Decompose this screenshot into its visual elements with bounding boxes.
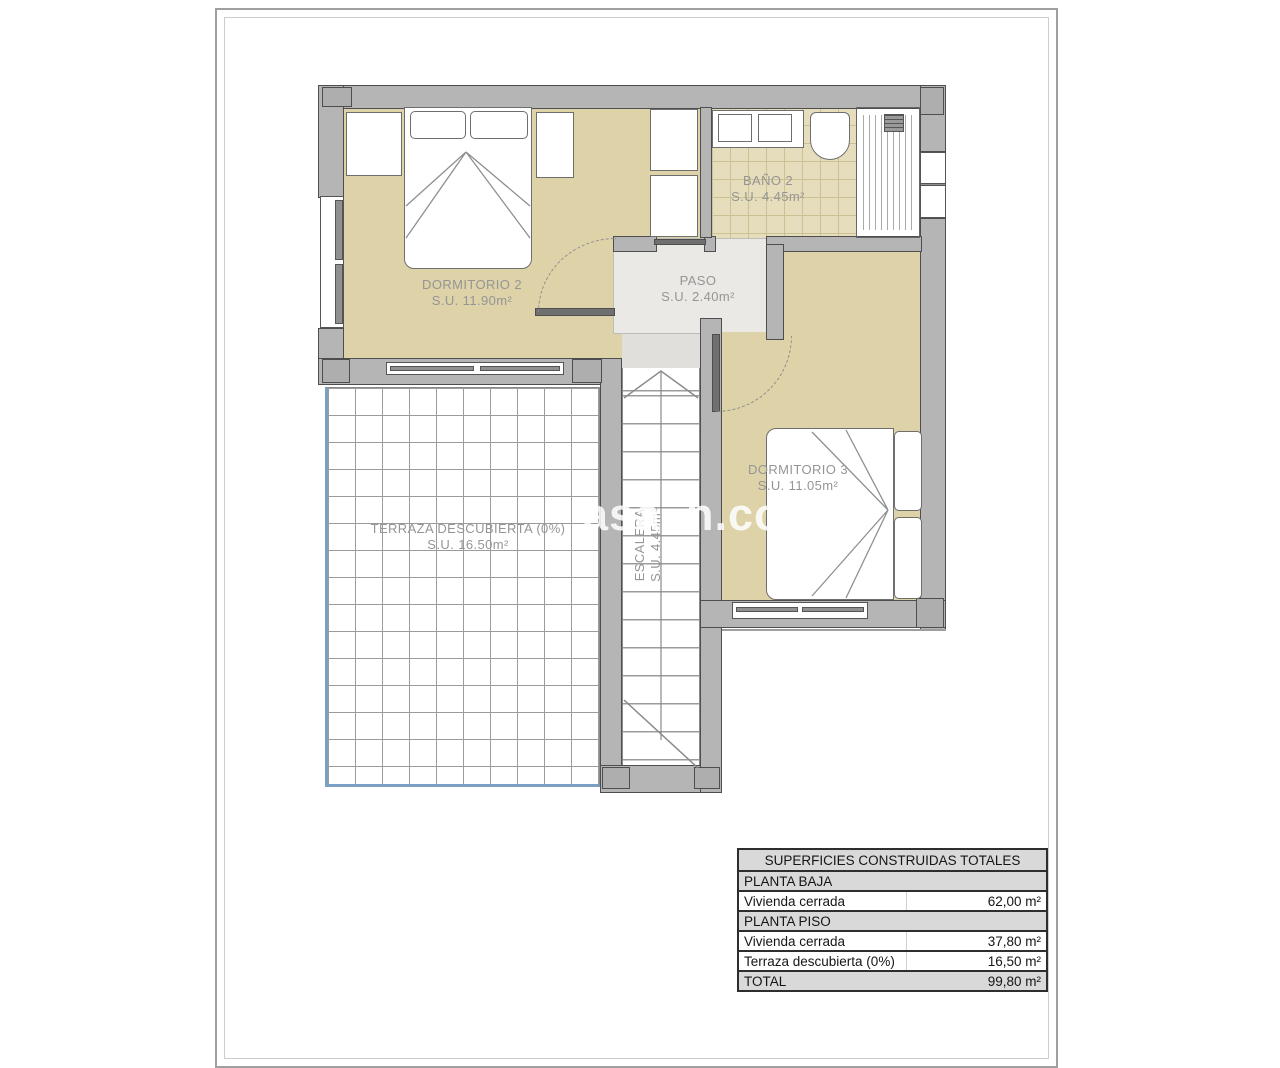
- room-label-paso: PASO S.U. 2.40m²: [628, 273, 768, 304]
- room-area: S.U. 2.40m²: [628, 289, 768, 305]
- row-value: 37,80 m²: [906, 932, 1041, 950]
- watermark-text-right: n.com: [686, 492, 824, 537]
- row-value: 16,50 m²: [906, 952, 1041, 970]
- table-row: Vivienda cerrada 37,80 m²: [739, 930, 1046, 950]
- row-label: Vivienda cerrada: [744, 934, 906, 949]
- table-row: Terraza descubierta (0%) 16,50 m²: [739, 950, 1046, 970]
- room-label-terraza: TERRAZA DESCUBIERTA (0%) S.U. 16.50m²: [348, 521, 588, 552]
- row-value: 62,00 m²: [906, 892, 1041, 910]
- room-name: PASO: [628, 273, 768, 289]
- total-value: 99,80 m²: [907, 972, 1041, 990]
- table-section-row: PLANTA PISO: [739, 910, 1046, 930]
- room-name: DORMITORIO 2: [372, 277, 572, 293]
- room-label-bano-2: BAÑO 2 S.U. 4.45m²: [698, 173, 838, 204]
- table-title: SUPERFICIES CONSTRUIDAS TOTALES: [765, 853, 1021, 868]
- section-header: PLANTA BAJA: [744, 874, 1041, 889]
- room-area: S.U. 4.45m²: [698, 189, 838, 205]
- section-header: PLANTA PISO: [744, 914, 1041, 929]
- table-title-row: SUPERFICIES CONSTRUIDAS TOTALES: [739, 850, 1046, 870]
- room-name: TERRAZA DESCUBIERTA (0%): [348, 521, 588, 537]
- room-name: DORMITORIO 3: [708, 462, 888, 478]
- total-label: TOTAL: [744, 974, 907, 989]
- row-label: Terraza descubierta (0%): [744, 954, 906, 969]
- table-row: Vivienda cerrada 62,00 m²: [739, 890, 1046, 910]
- room-name: BAÑO 2: [698, 173, 838, 189]
- surface-summary-table: SUPERFICIES CONSTRUIDAS TOTALES PLANTA B…: [737, 848, 1048, 992]
- room-area: S.U. 11.90m²: [372, 293, 572, 309]
- sheet: DORMITORIO 2 S.U. 11.90m² BAÑO 2 S.U. 4.…: [0, 0, 1280, 1024]
- watermark-text-left: asa: [583, 492, 661, 537]
- room-area: S.U. 16.50m²: [348, 537, 588, 553]
- room-label-dormitorio-2: DORMITORIO 2 S.U. 11.90m²: [372, 277, 572, 308]
- table-total-row: TOTAL 99,80 m²: [739, 970, 1046, 990]
- table-section-row: PLANTA BAJA: [739, 870, 1046, 890]
- row-label: Vivienda cerrada: [744, 894, 906, 909]
- floor-plan: DORMITORIO 2 S.U. 11.90m² BAÑO 2 S.U. 4.…: [0, 0, 1280, 1024]
